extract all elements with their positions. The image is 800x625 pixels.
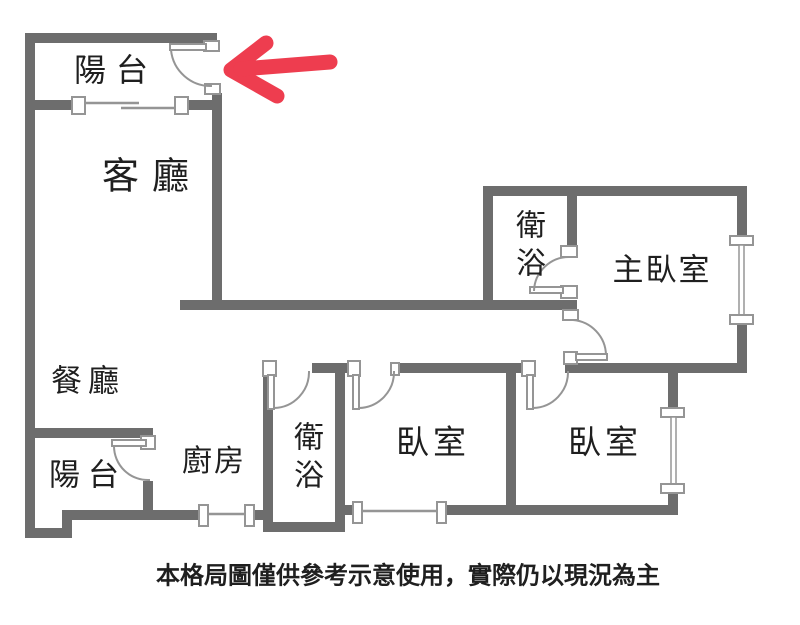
wall-segment	[567, 196, 577, 247]
room-label-bedroom-right: 臥室	[568, 426, 642, 459]
door-jamb	[348, 361, 360, 376]
wall-segment	[35, 100, 73, 110]
door-jamb	[563, 310, 578, 320]
floor-plan-drawing	[0, 0, 800, 625]
wall-segment	[445, 505, 678, 515]
master-door-leaf	[576, 354, 607, 360]
wall-segment	[25, 428, 153, 438]
wall-segment	[668, 493, 678, 515]
wall-segment	[506, 373, 516, 510]
wall-segment	[397, 363, 524, 373]
door-jamb	[522, 361, 535, 376]
wall-segment	[25, 33, 217, 43]
window-jamb	[353, 502, 362, 523]
window-jamb	[661, 408, 684, 417]
bathroom-bottom-door-leaf	[268, 375, 274, 409]
wall-segment	[737, 196, 747, 237]
wall-segment	[253, 510, 273, 520]
floor-plan: 陽台 客廳 餐廳 陽台 廚房 衛浴 衛浴 臥室 臥室 主臥室 本格局圖僅供參考示…	[0, 0, 800, 625]
window-jamb	[175, 97, 188, 114]
wall-segment	[62, 510, 200, 520]
window-jamb	[437, 502, 446, 523]
wall-segment	[212, 93, 222, 310]
room-label-bathroom-top: 衛浴	[512, 209, 542, 285]
wall-segment	[483, 186, 747, 196]
entry-door-leaf	[170, 44, 206, 50]
disclaimer-text: 本格局圖僅供參考示意使用，實際仍以現況為主	[156, 556, 660, 591]
wall-segment	[312, 363, 352, 373]
room-label-balcony-top: 陽台	[74, 54, 158, 86]
wall-segment	[62, 510, 72, 538]
bathroom-bottom-door-arc	[274, 371, 309, 408]
bedroom-right-door-leaf	[527, 375, 533, 409]
arrow-shaft	[241, 62, 330, 69]
door-jamb	[561, 246, 577, 257]
window-glazing	[671, 417, 676, 484]
room-label-living-room: 客廳	[102, 158, 202, 195]
wall-segment	[25, 33, 35, 538]
wall-segment	[180, 300, 577, 310]
window-jamb	[730, 315, 753, 324]
room-label-kitchen: 廚房	[182, 447, 246, 477]
wall-segment	[668, 373, 678, 409]
balcony-bottom-door-leaf	[112, 440, 146, 446]
window-glazing	[739, 245, 744, 315]
window-jamb	[730, 236, 753, 245]
room-label-master-bedroom: 主臥室	[613, 256, 712, 287]
window-jamb	[245, 505, 254, 526]
wall-segment	[263, 522, 345, 532]
room-label-balcony-bottom: 陽台	[49, 461, 127, 492]
master-door-arc	[573, 320, 606, 355]
bedroom-left-door-leaf	[353, 375, 359, 409]
room-label-bathroom-bottom: 衛浴	[290, 421, 320, 497]
bedroom-right-door-arc	[533, 371, 568, 408]
bedroom-left-door-arc	[359, 371, 394, 408]
door-jamb	[263, 361, 276, 376]
wall-segment	[565, 363, 747, 373]
room-label-bedroom-left: 臥室	[396, 426, 470, 459]
window-jamb	[199, 505, 208, 526]
window-jamb	[661, 484, 684, 493]
window-jamb	[72, 97, 85, 114]
wall-segment	[483, 196, 493, 300]
entry-arrow-icon	[231, 43, 330, 96]
entry-door-arc	[171, 50, 212, 86]
room-label-dining-room: 餐廳	[51, 367, 125, 398]
